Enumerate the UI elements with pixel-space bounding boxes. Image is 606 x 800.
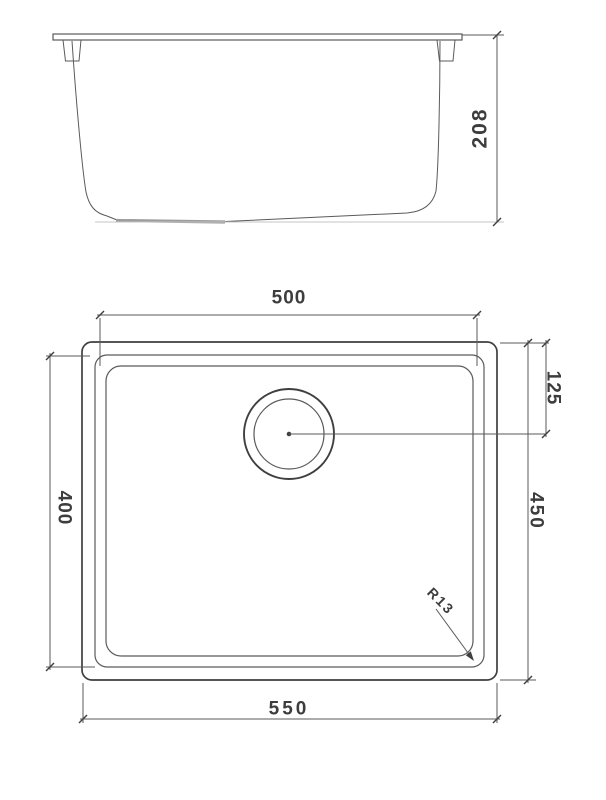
dimension-label-bowl-length: 400 bbox=[55, 491, 74, 526]
dimension-bowl-width-500 bbox=[96, 311, 481, 366]
sink-technical-drawing bbox=[0, 0, 606, 800]
dimension-label-bowl-width: 500 bbox=[272, 289, 307, 308]
sink-body-right-wall bbox=[225, 41, 440, 222]
radius-callout-r13 bbox=[436, 609, 474, 661]
sink-body-left-wall bbox=[72, 41, 117, 220]
radius-leader-line bbox=[436, 609, 471, 657]
dimension-label-depth: 208 bbox=[470, 107, 491, 148]
dimension-label-overall-width: 550 bbox=[269, 700, 310, 719]
technical-drawing-page: 208 500 550 400 450 125 R13 bbox=[0, 0, 606, 800]
dimension-label-overall-length: 450 bbox=[527, 492, 546, 530]
dimension-depth-208 bbox=[95, 31, 504, 226]
drain-outline bbox=[244, 389, 546, 479]
side-elevation-view bbox=[53, 31, 504, 226]
rim-profile bbox=[53, 34, 462, 40]
bowl-bottom-edge bbox=[106, 366, 473, 656]
top-plan-view bbox=[46, 311, 550, 723]
sink-outer-edge bbox=[82, 342, 497, 680]
bowl-top-edge bbox=[95, 355, 484, 667]
dimension-label-drain-offset: 125 bbox=[544, 371, 563, 406]
